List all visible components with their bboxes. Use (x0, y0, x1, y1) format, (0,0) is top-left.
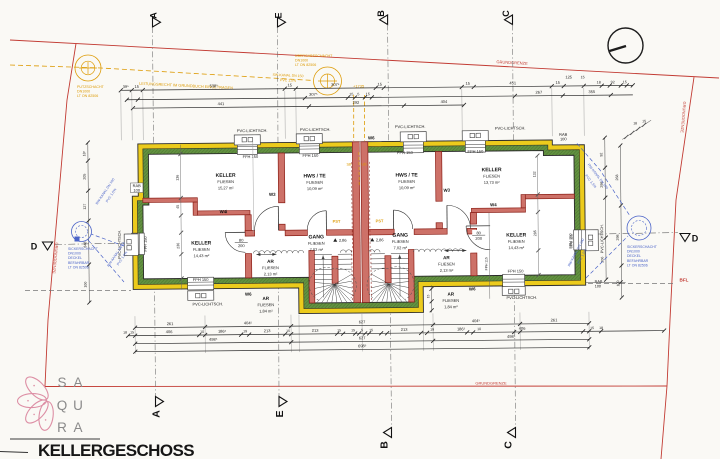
svg-text:PUTZSCHACHT: PUTZSCHACHT (77, 85, 105, 89)
svg-text:SICKERSCHACHT: SICKERSCHACHT (627, 245, 658, 249)
svg-text:B: B (379, 441, 391, 449)
svg-text:BEFAHRBAR: BEFAHRBAR (68, 261, 90, 265)
svg-text:15: 15 (623, 80, 627, 84)
svg-text:18: 18 (597, 80, 601, 84)
svg-text:AR: AR (447, 292, 454, 297)
svg-text:AR: AR (267, 259, 274, 264)
svg-text:100: 100 (595, 284, 601, 288)
svg-text:LT ON 82506: LT ON 82506 (68, 265, 89, 269)
svg-text:19: 19 (243, 329, 247, 333)
svg-text:7,02 m²: 7,02 m² (394, 245, 408, 250)
svg-text:10: 10 (200, 330, 204, 334)
svg-text:18⁵: 18⁵ (82, 150, 86, 156)
svg-text:PVC-LICHTSCH.: PVC-LICHTSCH. (192, 301, 223, 306)
svg-text:PVC-LICHTSCH.: PVC-LICHTSCH. (600, 224, 604, 253)
svg-text:FPH 150: FPH 150 (303, 153, 320, 158)
svg-text:5: 5 (361, 328, 363, 332)
svg-text:DN1000: DN1000 (68, 252, 81, 256)
svg-text:KELLER: KELLER (506, 232, 526, 238)
svg-text:PVC-LICHTSCH.: PVC-LICHTSCH. (495, 125, 526, 130)
svg-text:292: 292 (353, 100, 360, 105)
svg-text:498⁵: 498⁵ (507, 334, 516, 339)
svg-text:A: A (73, 375, 82, 390)
svg-text:PVC-LICHTSCH.: PVC-LICHTSCH. (300, 127, 331, 132)
svg-text:100: 100 (133, 188, 140, 193)
svg-text:15: 15 (366, 92, 370, 96)
svg-text:FLIESEN: FLIESEN (257, 302, 274, 307)
svg-text:FPH 115: FPH 115 (484, 257, 488, 270)
svg-text:DN1000: DN1000 (295, 59, 308, 63)
svg-text:DN1000: DN1000 (627, 250, 640, 254)
svg-text:451: 451 (509, 80, 516, 85)
svg-text:15: 15 (337, 328, 341, 332)
svg-text:DN1000: DN1000 (77, 90, 90, 94)
svg-text:AR: AR (262, 296, 269, 301)
svg-text:406: 406 (519, 326, 526, 331)
svg-text:205: 205 (83, 174, 87, 180)
svg-text:KELLER: KELLER (482, 167, 502, 173)
svg-text:15: 15 (590, 326, 594, 330)
svg-text:538⁵: 538⁵ (210, 83, 219, 88)
svg-text:FPH 150: FPH 150 (467, 149, 484, 154)
svg-text:C: C (503, 441, 515, 449)
svg-text:UB: UB (361, 162, 367, 166)
svg-text:B: B (376, 10, 386, 17)
svg-text:W6: W6 (368, 135, 375, 140)
svg-text:W6: W6 (245, 292, 252, 297)
svg-text:KELLER: KELLER (191, 240, 211, 246)
svg-text:125: 125 (565, 74, 572, 79)
svg-text:R: R (57, 420, 67, 435)
svg-text:15: 15 (426, 294, 430, 298)
svg-text:2,13 m²: 2,13 m² (440, 268, 454, 273)
svg-text:FLIESEN: FLIESEN (308, 241, 325, 246)
svg-text:10,09 m²: 10,09 m² (399, 185, 416, 190)
svg-text:FLIESEN: FLIESEN (193, 247, 210, 252)
svg-text:FPH 150: FPH 150 (193, 277, 210, 282)
svg-text:A: A (151, 410, 163, 418)
svg-text:404⁵: 404⁵ (472, 318, 481, 323)
svg-text:U: U (73, 398, 83, 413)
svg-text:PVC-LICHTSCH.: PVC-LICHTSCH. (395, 124, 426, 129)
svg-text:ÜBERGABESCHACHT: ÜBERGABESCHACHT (295, 54, 333, 58)
svg-text:W4i: W4i (220, 209, 228, 214)
svg-text:C: C (501, 10, 511, 17)
svg-text:285: 285 (533, 230, 537, 236)
svg-text:136: 136 (176, 175, 180, 181)
svg-text:15: 15 (351, 328, 355, 332)
svg-text:127: 127 (83, 204, 87, 210)
svg-text:D: D (31, 242, 38, 252)
svg-text:SB: SB (346, 163, 352, 167)
svg-text:15: 15 (369, 328, 373, 332)
svg-text:2,13 m²: 2,13 m² (264, 271, 278, 276)
svg-text:FLIESEN: FLIESEN (392, 239, 409, 244)
svg-text:1,84 m²: 1,84 m² (444, 304, 458, 309)
svg-text:FLIESEN: FLIESEN (398, 179, 415, 184)
svg-text:13,73 m²: 13,73 m² (484, 180, 501, 185)
svg-text:W6: W6 (469, 286, 476, 291)
svg-text:498⁵: 498⁵ (209, 337, 218, 342)
svg-text:307⁵: 307⁵ (309, 92, 318, 97)
svg-text:FLIESEN: FLIESEN (508, 239, 525, 244)
svg-text:GRUNDGRENZE: GRUNDGRENZE (475, 380, 507, 385)
svg-text:18: 18 (633, 121, 637, 125)
svg-text:92: 92 (599, 153, 603, 157)
svg-text:2,86: 2,86 (376, 237, 385, 242)
svg-text:18: 18 (599, 326, 603, 330)
svg-text:FLIESEN: FLIESEN (306, 180, 323, 185)
svg-text:15: 15 (349, 92, 353, 96)
svg-text:213: 213 (264, 328, 271, 333)
svg-text:200: 200 (238, 243, 245, 248)
svg-text:GANG: GANG (308, 234, 324, 240)
svg-text:15: 15 (642, 119, 646, 123)
svg-text:267: 267 (535, 90, 542, 95)
svg-text:213: 213 (401, 327, 408, 332)
svg-text:213: 213 (312, 328, 319, 333)
svg-text:19: 19 (430, 328, 434, 332)
svg-text:45: 45 (176, 205, 180, 209)
svg-text:HWS / TE: HWS / TE (303, 173, 326, 179)
svg-text:KELLERGESCHOSS: KELLERGESCHOSS (38, 441, 194, 459)
svg-text:404: 404 (441, 99, 448, 104)
svg-text:BEFAHRBAR: BEFAHRBAR (627, 259, 649, 263)
svg-text:D: D (692, 234, 699, 244)
svg-text:627: 627 (359, 335, 366, 340)
svg-text:FPH 150: FPH 150 (144, 237, 148, 252)
svg-text:PVC-LICHTSCH.: PVC-LICHTSCH. (506, 295, 537, 300)
svg-text:7,02 m²: 7,02 m² (310, 247, 324, 252)
svg-text:1,84 m²: 1,84 m² (259, 308, 273, 313)
svg-text:307⁵: 307⁵ (331, 82, 340, 87)
svg-text:RAB: RAB (595, 280, 603, 284)
svg-text:A: A (73, 420, 82, 435)
svg-text:268: 268 (615, 175, 619, 181)
svg-text:5: 5 (357, 92, 359, 96)
svg-text:GANG: GANG (392, 233, 408, 239)
svg-text:PST: PST (376, 218, 384, 223)
svg-text:AR: AR (443, 255, 450, 260)
svg-text:261: 261 (167, 321, 174, 326)
svg-text:15,27 m²: 15,27 m² (218, 185, 235, 190)
svg-text:LT ON 82506: LT ON 82506 (295, 63, 316, 67)
svg-text:FLIESEN: FLIESEN (217, 179, 234, 184)
svg-text:FFH 150: FFH 150 (243, 154, 259, 159)
svg-text:406: 406 (166, 329, 173, 334)
svg-text:W3: W3 (269, 192, 276, 197)
svg-text:15: 15 (130, 330, 134, 334)
svg-text:441: 441 (218, 101, 225, 106)
svg-text:2,86: 2,86 (339, 238, 348, 243)
svg-text:PVC-LICHTSCH.: PVC-LICHTSCH. (237, 128, 268, 133)
svg-text:LT ON 82506: LT ON 82506 (627, 263, 648, 267)
svg-text:S: S (57, 375, 66, 390)
svg-text:FLIESEN: FLIESEN (262, 265, 279, 270)
svg-text:FPH 115: FPH 115 (570, 234, 574, 247)
svg-text:10: 10 (477, 327, 481, 331)
svg-text:39⁵: 39⁵ (123, 84, 129, 89)
svg-text:18: 18 (123, 331, 127, 335)
svg-text:LT ON 82506: LT ON 82506 (77, 94, 98, 98)
svg-text:FPH 150: FPH 150 (397, 150, 414, 155)
svg-text:10,09 m²: 10,09 m² (307, 186, 324, 191)
svg-text:698⁵: 698⁵ (358, 343, 367, 348)
svg-text:100: 100 (616, 281, 620, 287)
svg-text:200: 200 (475, 236, 482, 241)
svg-text:404⁵: 404⁵ (244, 320, 253, 325)
svg-text:15: 15 (286, 329, 290, 333)
svg-text:DECKEL: DECKEL (627, 254, 641, 258)
svg-text:14,43 m²: 14,43 m² (193, 253, 210, 258)
svg-text:100: 100 (84, 282, 88, 288)
svg-text:355: 355 (588, 89, 595, 94)
svg-text:BFL: BFL (680, 278, 689, 283)
svg-text:186⁵: 186⁵ (457, 326, 466, 331)
svg-text:Q: Q (57, 398, 68, 413)
svg-text:W3: W3 (443, 188, 450, 193)
svg-text:627: 627 (359, 319, 366, 324)
svg-text:FPH 150: FPH 150 (508, 268, 525, 273)
svg-text:261: 261 (551, 317, 558, 322)
svg-text:FLIESEN: FLIESEN (438, 261, 455, 266)
svg-text:E: E (274, 410, 286, 417)
svg-text:PST: PST (333, 219, 341, 224)
svg-text:DECKEL: DECKEL (68, 256, 82, 260)
svg-text:100: 100 (560, 136, 567, 141)
svg-text:186⁵: 186⁵ (218, 329, 227, 334)
svg-text:132: 132 (533, 171, 537, 177)
svg-text:15: 15 (581, 75, 585, 79)
svg-text:HWS / TE: HWS / TE (395, 172, 418, 178)
svg-text:FLIESEN: FLIESEN (483, 173, 500, 178)
svg-text:FLIESEN: FLIESEN (442, 298, 459, 303)
svg-text:92: 92 (611, 80, 615, 84)
svg-text:KELLER: KELLER (216, 173, 236, 179)
svg-text:W4: W4 (490, 202, 497, 207)
svg-text:14,43 m²: 14,43 m² (508, 245, 525, 250)
svg-text:236: 236 (176, 243, 180, 249)
svg-text:298: 298 (616, 235, 620, 241)
